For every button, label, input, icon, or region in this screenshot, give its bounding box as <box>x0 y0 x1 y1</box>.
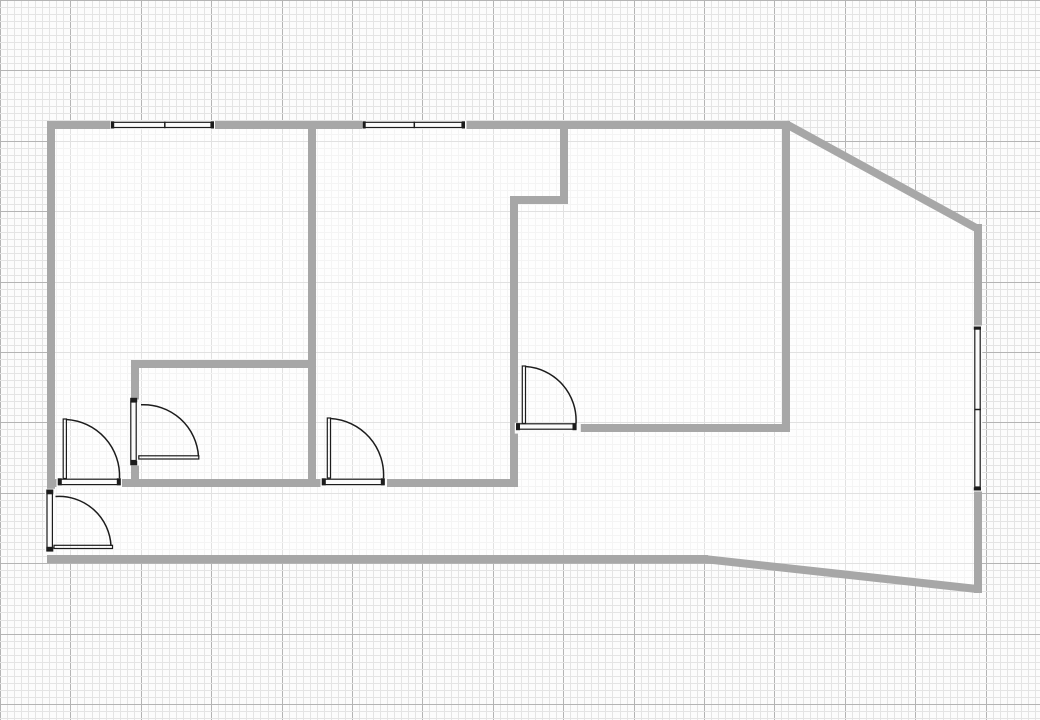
window-top-left[interactable] <box>111 121 216 130</box>
window-right[interactable] <box>973 326 982 492</box>
window-top-middle[interactable] <box>362 121 467 130</box>
floor-plan-app <box>0 0 1040 720</box>
floor-plan-canvas[interactable] <box>0 0 1040 720</box>
